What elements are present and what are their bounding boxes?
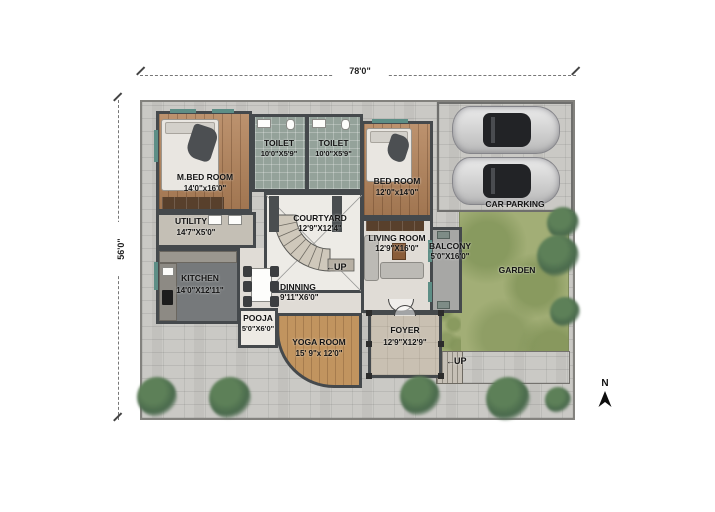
label-balcony-size: 5'0"X16'0" (419, 252, 481, 262)
column (366, 310, 372, 316)
tv-unit (366, 221, 424, 231)
label-utility: UTILITY (160, 216, 222, 226)
dining-chair (243, 281, 252, 292)
tree (545, 387, 571, 413)
sofa-main (380, 262, 424, 279)
label-master-bedroom-size: 14'0"x16'0" (160, 184, 250, 194)
label-foyer: FOYER (379, 325, 431, 335)
label-utility-size: 14'7"X5'0" (163, 228, 229, 238)
window (428, 282, 432, 302)
label-garden: GARDEN (486, 265, 548, 275)
dresser (162, 197, 224, 209)
bed (366, 128, 412, 182)
car-top-view (452, 157, 560, 205)
tree (486, 377, 530, 421)
label-pooja: POOJA (238, 313, 278, 323)
label-dinning-size: 9'11"X6'0" (280, 293, 340, 303)
left-arrow-icon: ← (326, 262, 334, 272)
column (438, 373, 444, 379)
dimension-height-label: 56'0" (116, 222, 126, 276)
column (366, 373, 372, 379)
dimension-tick (136, 66, 145, 75)
window (212, 109, 234, 113)
label-kitchen-size: 14'0"X12'11" (159, 286, 241, 296)
tree (209, 377, 251, 419)
floor-plan-canvas: 78'0" 56'0" (0, 0, 715, 512)
label-balcony: BALCONY (419, 241, 481, 251)
up-entry-label: UP (454, 356, 467, 366)
label-yoga-room-size: 15' 9"x 12'0" (279, 349, 359, 359)
label-foyer-size: 12'9"X12'9" (371, 338, 439, 348)
window (170, 109, 196, 113)
north-label: N (597, 378, 613, 389)
sink-fixture (312, 119, 326, 128)
tree (550, 297, 580, 327)
label-master-bedroom: M.BED ROOM (160, 172, 250, 182)
car-top-view (452, 106, 560, 154)
label-courtyard: COURTYARD (280, 213, 360, 223)
label-toilet-2-size: 10'0"X5'9" (304, 149, 363, 158)
window (154, 130, 158, 162)
label-car-parking: CAR PARKING (470, 199, 560, 209)
label-toilet-1: TOILET (252, 138, 306, 148)
column (438, 310, 444, 316)
label-yoga-room: YOGA ROOM (279, 337, 359, 347)
dining-chair (270, 266, 279, 277)
car-cabin (483, 164, 531, 198)
up-entry-annotation: ←UP (446, 356, 467, 366)
label-toilet-2: TOILET (306, 138, 361, 148)
kitchen-counter (159, 251, 237, 263)
dimension-width-label: 78'0" (333, 66, 387, 76)
label-bedroom: BED ROOM (361, 176, 433, 186)
label-dinning: DINNING (280, 282, 340, 292)
toilet-fixture (286, 119, 295, 130)
label-courtyard-size: 12'9"X12'4" (282, 224, 358, 234)
label-toilet-1-size: 10'0"X5'9" (250, 149, 308, 158)
dining-chair (270, 281, 279, 292)
washer (228, 215, 242, 225)
dimension-tick (571, 66, 580, 75)
car-cabin (483, 113, 531, 147)
toilet-fixture (341, 119, 350, 130)
label-kitchen: KITCHEN (164, 273, 236, 283)
planter (437, 231, 450, 239)
up-stair-label: UP (334, 262, 347, 272)
courtyard-stair-graphic (266, 195, 362, 292)
planter (437, 301, 450, 309)
left-arrow-icon: ← (446, 356, 454, 366)
tree (137, 377, 177, 417)
dining-table (251, 268, 272, 302)
sink-fixture (257, 119, 271, 128)
window (372, 119, 408, 123)
dining-chair (243, 266, 252, 277)
tree (400, 376, 440, 416)
up-stair-annotation: ←UP (326, 262, 347, 272)
dining-chair (270, 296, 279, 307)
label-bedroom-size: 12'0"x14'0" (361, 188, 433, 198)
dining-chair (243, 296, 252, 307)
tree (547, 207, 579, 239)
window (154, 262, 158, 290)
north-arrow-icon (597, 391, 613, 408)
label-pooja-size: 5'0"X6'0" (236, 324, 280, 333)
